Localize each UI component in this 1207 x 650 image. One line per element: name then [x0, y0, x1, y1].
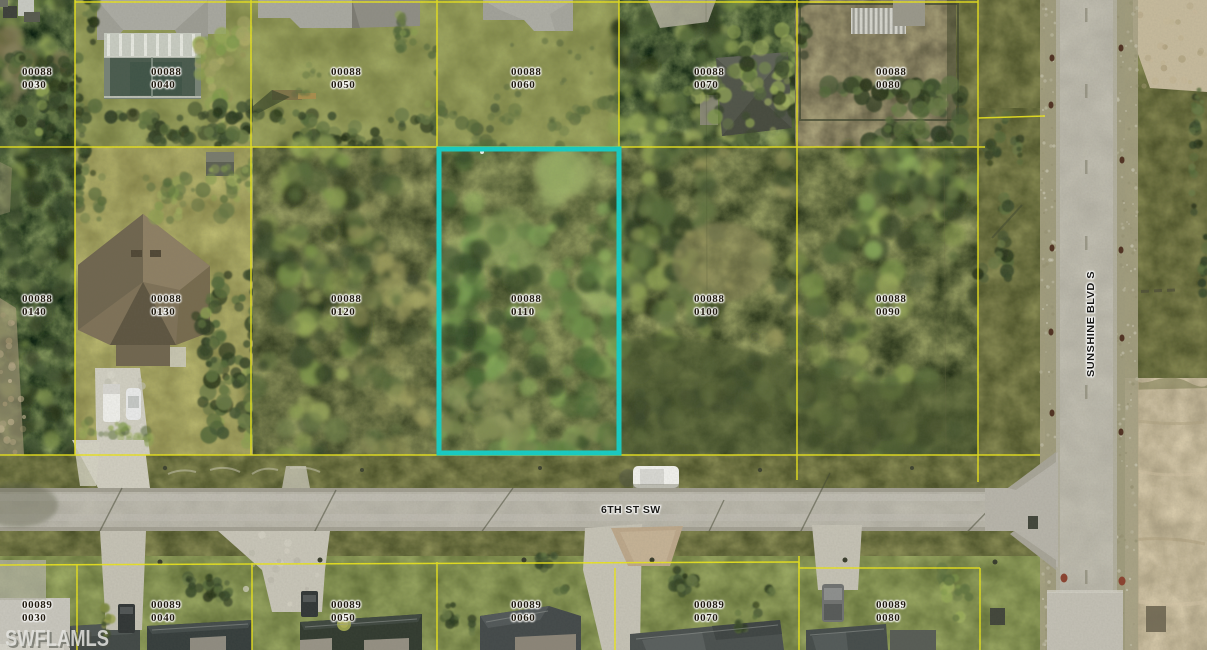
svg-text:SWFLAMLS: SWFLAMLS — [5, 625, 109, 650]
